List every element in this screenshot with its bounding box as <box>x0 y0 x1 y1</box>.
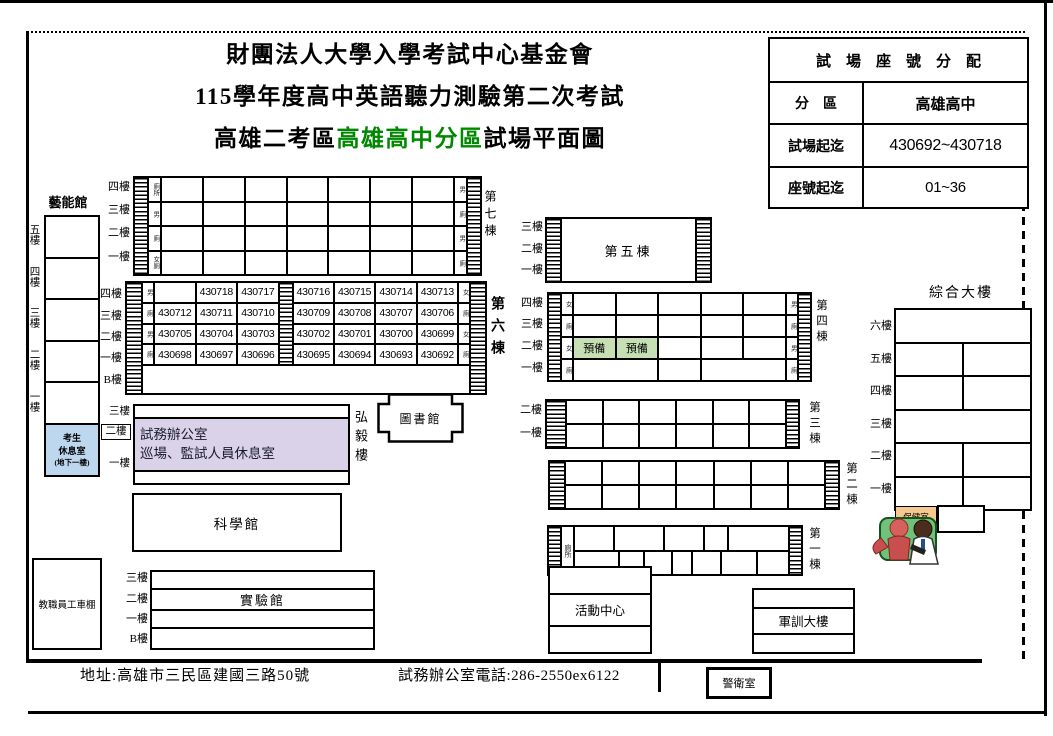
assignment-table-title: 試 場 座 號 分 配 <box>770 39 1027 81</box>
room-cell <box>329 178 369 201</box>
lab-building: 實驗館 <box>150 570 375 650</box>
exam-room: 430698 <box>155 345 195 364</box>
room-cell <box>640 462 675 484</box>
toilet-label: 男 <box>787 338 797 358</box>
room-cell <box>46 300 98 340</box>
room-cell <box>567 401 602 423</box>
exam-room: 430699 <box>418 325 457 344</box>
reserve-room: 預備 <box>574 338 615 358</box>
exam-room: 430706 <box>418 304 457 323</box>
library-name: 圖書館 <box>377 393 464 443</box>
exam-room: 430716 <box>294 283 333 302</box>
room-cell <box>673 552 691 575</box>
floor-label: 一樓 <box>510 362 543 374</box>
room-cell <box>754 635 853 652</box>
room-cell <box>135 472 348 483</box>
exam-room: 430704 <box>197 325 237 344</box>
floor-label-boxed: 二樓 <box>101 424 131 440</box>
room-cell <box>329 227 369 250</box>
building-6: 男 廁 男 廁 430718 430717 430712 430711 4307… <box>125 281 487 395</box>
activity-center: 活動中心 <box>548 566 652 654</box>
map-title-prefix: 高雄二考區 <box>214 126 337 151</box>
exam-room: 430711 <box>197 304 237 323</box>
floor-label: 三樓 <box>102 406 130 418</box>
room-cell <box>744 338 785 358</box>
stairs-hatch <box>549 294 560 380</box>
building-4: 女 廁 女 廁 預備 預備 男 廁 男 廁 <box>547 292 812 382</box>
room-cell <box>744 316 785 336</box>
building-7-name: 第七棟 <box>482 190 499 241</box>
floor-label: 二樓 <box>510 340 543 352</box>
toilet-label: 男 <box>143 325 153 344</box>
room-cell <box>615 527 662 550</box>
room-cell <box>575 527 613 550</box>
room-cell <box>702 360 785 380</box>
room-cell <box>288 252 328 275</box>
room-cell <box>371 252 411 275</box>
floor-label: 一樓 <box>860 483 892 495</box>
building-5: 第五棟 <box>545 217 712 283</box>
toilet-label: 男 <box>143 283 153 302</box>
room-cell <box>659 360 700 380</box>
map-title-highlight: 高雄高中分區 <box>337 126 484 151</box>
room-cell <box>722 552 757 575</box>
exam-room: 430692 <box>418 345 457 364</box>
floor-label: 四樓 <box>94 288 122 300</box>
floor-label: 五樓 <box>860 353 892 365</box>
rest-room-line: (地下一樓) <box>55 457 90 468</box>
toilet-label: 女 <box>562 294 572 314</box>
room-cell <box>754 590 853 607</box>
room-cell <box>659 294 700 314</box>
room-cell <box>246 227 286 250</box>
room-cell <box>413 252 453 275</box>
floor-label: 三樓 <box>28 307 40 328</box>
toilet-label: 女 <box>562 338 572 358</box>
building-2 <box>548 460 840 510</box>
toilet-label: 廁 <box>787 316 797 336</box>
rest-room-line: 休息室 <box>58 444 85 457</box>
room-cell <box>204 252 244 275</box>
seat-assignment-table: 試 場 座 號 分 配 分 區 高雄高中 試場起迄 430692~430718 … <box>768 37 1029 209</box>
military-building-name: 軍訓大樓 <box>754 609 853 633</box>
room-cell <box>677 462 712 484</box>
room-cell <box>659 316 700 336</box>
room-cell <box>604 425 639 447</box>
toilet-label: 男 <box>455 227 466 250</box>
toilet-label: 廁 <box>455 252 466 275</box>
room-cell <box>750 401 785 423</box>
room-cell <box>789 462 824 484</box>
stairs-hatch <box>547 401 565 447</box>
floor-label: 一樓 <box>94 352 122 364</box>
stairs-hatch <box>280 283 292 364</box>
room-cell <box>371 178 411 201</box>
room-cell <box>574 360 657 380</box>
seat-range-label: 座號起迄 <box>770 168 862 207</box>
floor-label: 三樓 <box>94 204 130 216</box>
floor-label: 一樓 <box>94 251 130 263</box>
exam-room: 430717 <box>238 283 278 302</box>
exam-room: 430710 <box>238 304 278 323</box>
room-cell <box>693 552 719 575</box>
seat-range-value: 01~36 <box>864 168 1027 207</box>
scan-edge-right <box>1044 0 1047 716</box>
floor-label: 三樓 <box>860 418 892 430</box>
room-cell <box>640 486 675 508</box>
military-building: 軍訓大樓 <box>752 588 855 654</box>
room-cell <box>550 568 650 593</box>
exam-room: 430714 <box>376 283 415 302</box>
building-6-name: 第六棟 <box>486 296 506 362</box>
map-title-suffix: 試場平面圖 <box>484 126 607 151</box>
exam-room: 430703 <box>238 325 278 344</box>
room-cell <box>566 486 601 508</box>
room-cell <box>246 203 286 226</box>
floor-label: 四樓 <box>28 266 40 287</box>
reserve-room: 預備 <box>617 338 658 358</box>
room-cell <box>246 178 286 201</box>
exam-map-page: 財團法人大學入學考試中心基金會 115學年度高中英語聽力測驗第二次考試 高雄二考… <box>0 0 1053 736</box>
exam-room: 430697 <box>197 345 237 364</box>
room-cell <box>758 552 788 575</box>
stairs-hatch <box>799 294 810 380</box>
exam-room: 430715 <box>335 283 374 302</box>
exam-room: 430696 <box>238 345 278 364</box>
room-cell <box>729 527 788 550</box>
footer-divider-tick <box>658 662 661 692</box>
floor-label: 五樓 <box>28 224 40 245</box>
room-cell <box>46 383 98 423</box>
room-cell <box>677 486 712 508</box>
activity-center-name: 活動中心 <box>550 595 650 624</box>
room-cell <box>714 401 749 423</box>
floor-label: 四樓 <box>94 181 130 193</box>
room-cell <box>152 629 373 648</box>
room-cell <box>750 425 785 447</box>
room-cell <box>604 401 639 423</box>
staff-parking: 教職員工車棚 <box>32 558 102 650</box>
floor-label: 四樓 <box>860 385 892 397</box>
frame-bottom-border <box>26 659 982 663</box>
exam-room: 430712 <box>155 304 195 323</box>
floor-label: 四樓 <box>510 297 543 309</box>
exam-room: 430702 <box>294 325 333 344</box>
room-cell <box>715 486 750 508</box>
stairs-hatch <box>550 462 564 508</box>
room-cell <box>714 425 749 447</box>
room-cell <box>702 294 743 314</box>
stairs-hatch <box>468 178 480 274</box>
hongyi-building: 試務辦公室 巡場、監試人員休息室 <box>133 404 350 485</box>
floor-label: B樓 <box>118 633 148 645</box>
room-cell <box>288 203 328 226</box>
toilet-label: 廁 <box>459 304 469 323</box>
room-cell <box>329 252 369 275</box>
room-cell <box>574 294 615 314</box>
exam-room: 430709 <box>294 304 333 323</box>
stairs-hatch <box>787 401 798 447</box>
toilet-label: 廁 <box>149 227 160 250</box>
toilet-label: 男 <box>149 203 160 226</box>
exam-room: 430701 <box>335 325 374 344</box>
district-label: 分 區 <box>770 83 862 123</box>
room-cell <box>371 203 411 226</box>
science-hall: 科學館 <box>132 493 342 552</box>
floor-label: 一樓 <box>514 264 543 276</box>
floor-label: 二樓 <box>94 331 122 343</box>
room-cell <box>603 486 638 508</box>
exam-room: 430693 <box>376 345 415 364</box>
room-cell <box>143 366 469 393</box>
floor-label: 三樓 <box>118 572 148 584</box>
building-1-name: 第一棟 <box>806 527 822 574</box>
floor-label: 一樓 <box>118 613 148 625</box>
exam-room: 430718 <box>197 283 237 302</box>
proctor-rest-label: 巡場、監試人員休息室 <box>140 445 275 463</box>
toilet-label: 廁 <box>455 203 466 226</box>
yineng-hall-title: 藝能館 <box>38 196 98 210</box>
room-cell <box>617 316 658 336</box>
room-cell <box>204 203 244 226</box>
building-3 <box>545 399 800 449</box>
room-cell <box>288 178 328 201</box>
room-cell <box>162 252 202 275</box>
toilet-label: 廁 <box>459 345 469 364</box>
building-2-name: 第二棟 <box>843 462 859 509</box>
room-cell <box>566 462 601 484</box>
toilet-label: 廁所 <box>149 178 160 201</box>
toilet-label: 廁 <box>143 345 153 364</box>
exam-room <box>155 283 195 302</box>
room-cell <box>413 203 453 226</box>
room-cell <box>46 259 98 299</box>
org-title: 財團法人大學入學考試中心基金會 <box>140 40 680 70</box>
exam-room: 430705 <box>155 325 195 344</box>
rest-room-line: 考生 <box>63 431 81 444</box>
room-cell <box>964 444 1030 476</box>
room-cell <box>705 527 727 550</box>
room-cell <box>744 294 785 314</box>
floor-label: 二樓 <box>94 227 130 239</box>
exam-room: 430707 <box>376 304 415 323</box>
room-cell <box>896 344 962 376</box>
building-5-name: 第五棟 <box>562 219 695 281</box>
room-cell <box>46 217 98 257</box>
stairs-hatch <box>790 527 801 574</box>
district-value: 高雄高中 <box>864 83 1027 123</box>
frame-top-border <box>26 31 1025 33</box>
room-cell <box>677 425 712 447</box>
room-cell <box>677 401 712 423</box>
toilet-label: 女廁 <box>149 252 160 275</box>
hongyi-name: 弘毅樓 <box>351 410 370 467</box>
toilet-label: 廁 <box>562 316 572 336</box>
lab-name: 實驗館 <box>152 590 373 609</box>
exam-room: 430695 <box>294 345 333 364</box>
room-cell <box>135 406 348 417</box>
complex-title: 綜合大樓 <box>894 286 1028 301</box>
toilet-label: 男 <box>787 294 797 314</box>
toilet-label: 女 <box>459 283 469 302</box>
room-cell <box>702 338 743 358</box>
floor-label: 三樓 <box>510 318 543 330</box>
room-cell <box>702 316 743 336</box>
room-cell <box>640 425 675 447</box>
exam-office-label: 試務辦公室 <box>140 426 208 444</box>
room-cell <box>574 316 615 336</box>
scan-edge-top <box>0 0 1053 3</box>
room-cell <box>204 178 244 201</box>
room-cell <box>246 252 286 275</box>
address-text: 地址:高雄市三民區建國三路50號 <box>80 668 310 685</box>
stairs-hatch <box>471 283 485 393</box>
floor-label: 六樓 <box>860 320 892 332</box>
room-cell <box>715 462 750 484</box>
room-cell <box>46 342 98 382</box>
exam-room: 430694 <box>335 345 374 364</box>
room-cell <box>550 627 650 652</box>
complex-building <box>894 308 1032 511</box>
room-cell <box>567 425 602 447</box>
room-cell <box>752 486 787 508</box>
room-cell <box>152 572 373 588</box>
room-cell <box>204 227 244 250</box>
room-cell <box>413 227 453 250</box>
floor-label: 二樓 <box>514 243 543 255</box>
room-cell <box>371 227 411 250</box>
room-cell <box>659 338 700 358</box>
examinee-rest-room: 考生 休息室 (地下一樓) <box>46 425 98 475</box>
room-cell <box>162 178 202 201</box>
title-block: 財團法人大學入學考試中心基金會 115學年度高中英語聽力測驗第二次考試 高雄二考… <box>140 40 680 166</box>
stairs-hatch <box>127 283 141 393</box>
room-cell <box>896 411 1030 443</box>
floor-label: 一樓 <box>102 458 130 470</box>
building-3-name: 第三棟 <box>806 401 822 448</box>
stairs-hatch <box>697 219 710 281</box>
room-cell <box>896 310 1030 342</box>
stairs-hatch <box>135 178 147 274</box>
room-cell <box>617 294 658 314</box>
room-cell <box>896 377 962 409</box>
room-range-label: 試場起迄 <box>770 125 862 166</box>
room-cell <box>162 203 202 226</box>
room-cell <box>640 401 675 423</box>
toilet-label: 女 <box>459 325 469 344</box>
phone-text: 試務辦公室電話:286-2550ex6122 <box>398 668 620 685</box>
room-cell <box>152 611 373 627</box>
room-cell <box>413 178 453 201</box>
room-range-value: 430692~430718 <box>864 125 1027 166</box>
room-cell <box>896 444 962 476</box>
room-cell <box>288 227 328 250</box>
building-4-name: 第四棟 <box>813 299 829 346</box>
room-cell <box>964 377 1030 409</box>
scan-edge-bottom <box>28 711 1047 714</box>
room-cell <box>752 462 787 484</box>
frame-left-border <box>26 31 29 661</box>
room-cell <box>162 227 202 250</box>
room-cell <box>665 527 703 550</box>
floor-label: 三樓 <box>94 310 122 322</box>
room-cell <box>329 203 369 226</box>
office-band: 試務辦公室 巡場、監試人員休息室 <box>135 419 348 470</box>
floor-label: 二樓 <box>512 404 542 416</box>
floor-label: 二樓 <box>118 593 148 605</box>
toilet-label: 廁 <box>143 304 153 323</box>
stairs-hatch <box>547 219 560 281</box>
toilet-label: 男 <box>455 178 466 201</box>
building-7: 廁所 男 廁 女廁 男 廁 男 廁 <box>133 176 482 276</box>
exam-title: 115學年度高中英語聽力測驗第二次考試 <box>140 82 680 112</box>
floor-label: 二樓 <box>28 349 40 370</box>
toilet-label: 廁 <box>562 360 572 380</box>
exam-room: 430708 <box>335 304 374 323</box>
exam-room: 430713 <box>418 283 457 302</box>
yineng-hall: 考生 休息室 (地下一樓) <box>44 215 100 477</box>
health-room-clipart <box>866 512 954 568</box>
floor-label: 三樓 <box>514 221 543 233</box>
exam-room: 430700 <box>376 325 415 344</box>
guard-room: 警衛室 <box>706 667 772 699</box>
room-cell <box>789 486 824 508</box>
floor-label: B樓 <box>94 374 122 386</box>
room-cell <box>603 462 638 484</box>
floor-label: 一樓 <box>28 391 40 412</box>
floor-label: 二樓 <box>860 450 892 462</box>
map-title: 高雄二考區高雄高中分區試場平面圖 <box>140 124 680 154</box>
room-cell <box>964 344 1030 376</box>
floor-label: 一樓 <box>512 427 542 439</box>
toilet-label: 廁 <box>787 360 797 380</box>
stairs-hatch <box>826 462 838 508</box>
